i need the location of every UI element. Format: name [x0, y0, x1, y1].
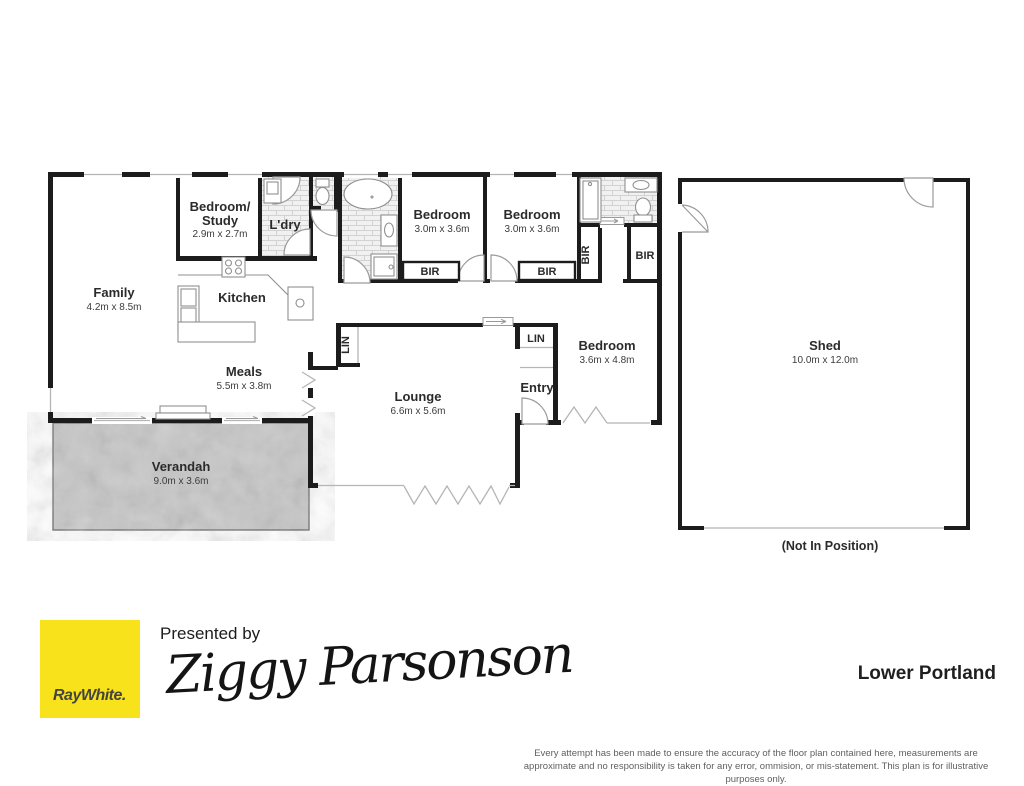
- bedroom3-dims: 3.6m x 4.8m: [579, 355, 634, 366]
- shed-area: [678, 178, 970, 530]
- bir4-label: BIR: [636, 250, 655, 262]
- bir2-label: BIR: [538, 266, 557, 278]
- raywhite-logo: RayWhite.: [40, 620, 140, 718]
- lin-entry-label: LIN: [527, 333, 545, 345]
- entry-label: Entry: [520, 380, 554, 395]
- kitchen-label: Kitchen: [218, 290, 266, 305]
- family-room-label: Family: [93, 285, 135, 300]
- raywhite-logo-text: RayWhite.: [53, 687, 126, 705]
- bedroom-study-label-1: Bedroom/: [190, 199, 251, 214]
- bedroom2-label: Bedroom: [503, 207, 560, 222]
- shed-dims: 10.0m x 12.0m: [792, 355, 858, 366]
- verandah-label: Verandah: [152, 459, 211, 474]
- zigzag-openings: [302, 372, 607, 504]
- meals-dims: 5.5m x 3.8m: [216, 381, 271, 392]
- lin-lounge-label: LIN: [340, 336, 352, 354]
- bedroom1-dims: 3.0m x 3.6m: [414, 224, 469, 235]
- shed-note: (Not In Position): [782, 539, 879, 553]
- bedroom3-label: Bedroom: [578, 338, 635, 353]
- bir3-label: BIR: [580, 245, 592, 264]
- bedroom-study-dims: 2.9m x 2.7m: [192, 229, 247, 240]
- disclaimer-text: Every attempt has been made to ensure th…: [518, 748, 994, 786]
- bir1-label: BIR: [421, 266, 440, 278]
- lounge-label: Lounge: [395, 389, 442, 404]
- bedroom2-dims: 3.0m x 3.6m: [504, 224, 559, 235]
- bedroom1-label: Bedroom: [413, 207, 470, 222]
- location-title: Lower Portland: [700, 663, 996, 685]
- shed-label: Shed: [809, 338, 841, 353]
- laundry-label: L'dry: [269, 217, 301, 232]
- lounge-dims: 6.6m x 5.6m: [390, 406, 445, 417]
- family-room-dims: 4.2m x 8.5m: [86, 302, 141, 313]
- meals-label: Meals: [226, 364, 262, 379]
- verandah-dims: 9.0m x 3.6m: [153, 476, 208, 487]
- bedroom-study-label-2: Study: [202, 213, 239, 228]
